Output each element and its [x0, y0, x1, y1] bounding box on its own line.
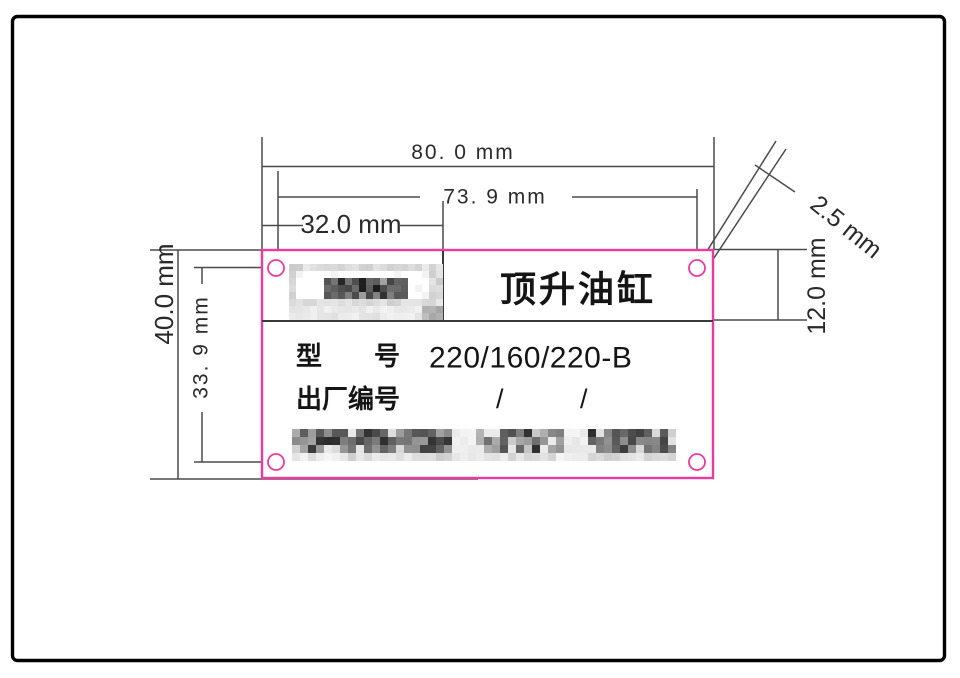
serial-label: 出厂编号: [296, 384, 400, 415]
model-label: 型 号: [296, 342, 400, 372]
mounting-hole-bottom-left-icon: [268, 454, 284, 470]
model-value: 220/160/220-B: [429, 342, 632, 375]
dim-label-plate-height: 40.0 mm: [149, 243, 179, 344]
dim-label-title-row-height: 12.0 mm: [803, 237, 831, 334]
serial-slash-2: /: [580, 384, 588, 414]
leader-line-hole-2: [712, 149, 786, 261]
dim-label-plate-width: 80. 0 mm: [411, 141, 515, 164]
serial-slash-1: /: [496, 384, 504, 414]
blurred-company-name-icon: [292, 429, 676, 461]
leader-line-hole-1: [702, 141, 776, 259]
dim-label-hole-spacing-horizontal: 73. 9 mm: [443, 186, 547, 209]
plate-title: 顶升油缸: [500, 269, 656, 311]
dim-label-hole-spacing-vertical: 33. 9 mm: [190, 295, 213, 399]
mounting-hole-top-left-icon: [268, 260, 284, 276]
mounting-hole-bottom-right-icon: [689, 454, 705, 470]
mounting-hole-top-right-icon: [689, 260, 705, 276]
dim-label-logo-cell-width: 32.0 mm: [300, 209, 401, 239]
nameplate: 顶升油缸 型 号 220/160/220-B 出厂编号 / /: [262, 250, 713, 478]
technical-drawing-canvas: 顶升油缸 型 号 220/160/220-B 出厂编号 / / 80. 0 mm…: [0, 0, 960, 678]
